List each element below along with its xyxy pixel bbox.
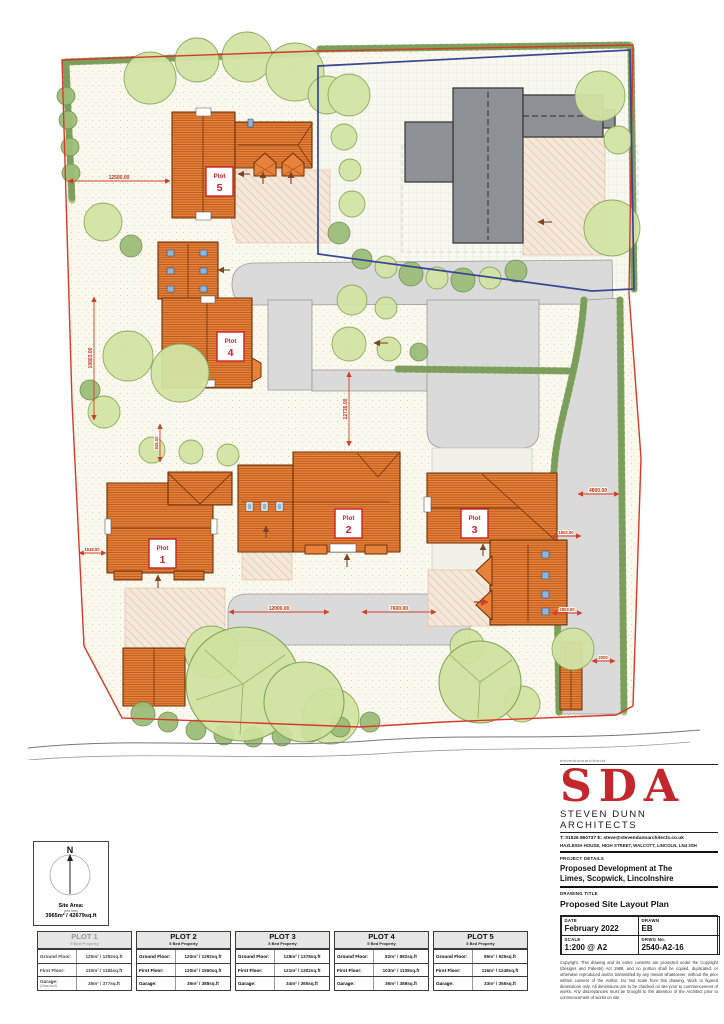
dimension-label: 4800.00	[589, 488, 607, 494]
plot4-title: PLOT 4	[335, 933, 428, 941]
table-row: Ground Floor: 120m² / 1292sq.ft	[38, 949, 131, 963]
plot4-subtitle: 5 Bed Property	[335, 941, 428, 946]
sda-logo: SDA	[560, 766, 718, 808]
table-row: Ground Floor: 86m² / 925sq.ft	[434, 949, 527, 963]
svg-text:Plot: Plot	[225, 338, 238, 345]
svg-text:5: 5	[217, 182, 223, 194]
plot-label-1: Plot 1	[149, 539, 176, 568]
plot3-title: PLOT 3	[236, 933, 329, 941]
plot2-title: PLOT 2	[137, 933, 230, 941]
table-row: First Floor: 103m² / 1108sq.ft	[335, 963, 428, 977]
table-row: First Floor: 110m² / 1184sq.ft	[38, 963, 131, 977]
table-row: First Floor: 116m² / 1248sq.ft	[434, 963, 527, 977]
table-row: Garage: (Detached) 35m² / 377sq.ft	[38, 976, 131, 990]
project-details-label: PROJECT DETAILS	[560, 856, 718, 861]
date-value: February 2022	[565, 924, 635, 933]
dimension-label: 12000.00	[269, 606, 290, 612]
project-details: Proposed Development at The Limes, Scopw…	[560, 864, 680, 883]
svg-text:Plot: Plot	[214, 173, 227, 180]
dimension-label: 845.00	[154, 436, 159, 449]
table-row: Ground Floor: 120m² / 1292sq.ft	[137, 949, 230, 963]
site-area-value: 3965m² / 42679sq.ft	[34, 913, 108, 919]
plot3-subtitle: 5 Bed Property	[236, 941, 329, 946]
copyright-note: Copyright. This drawing and its entire c…	[560, 960, 718, 1001]
drawn-value: EB	[642, 924, 716, 933]
dimension-label: 12500.00	[109, 175, 130, 181]
drawing-info-grid: DATE February 2022 DRAWN EB SCALE 1:200 …	[560, 915, 718, 955]
table-row: Ground Floor: 82m² / 882sq.ft	[335, 949, 428, 963]
plot5-title: PLOT 5	[434, 933, 527, 941]
address-line: HAZLEIGH HOUSE, HIGH STREET, WALCOTT, LI…	[560, 843, 718, 848]
table-row: First Floor: 120m² / 1550sq.ft	[137, 963, 230, 977]
table-row: Garage: 33m² / 355sq.ft	[434, 976, 527, 990]
garage-plot-4	[158, 242, 218, 299]
plot-label-2: Plot 2	[335, 509, 362, 538]
dimension-label: 2000	[598, 655, 608, 660]
plot-table-4: PLOT 4 5 Bed Property Ground Floor: 82m²…	[334, 931, 429, 991]
table-row: Ground Floor: 128m² / 1378sq.ft	[236, 949, 329, 963]
compass: N	[34, 842, 106, 900]
scale-label: SCALE	[565, 937, 635, 942]
svg-text:Plot: Plot	[469, 515, 482, 522]
north-letter: N	[67, 845, 74, 855]
date-cell: DATE February 2022	[561, 916, 639, 936]
svg-text:3: 3	[472, 524, 478, 536]
firm-name: STEVEN DUNN ARCHITECTS	[560, 809, 718, 831]
drwg-value: 2540-A2-16	[642, 943, 716, 952]
plot-tables: PLOT 1 5 Bed Property Ground Floor: 120m…	[37, 931, 528, 991]
dimension-label: 10803.00	[88, 347, 94, 368]
garage-plot-1	[123, 648, 185, 706]
scale-value: 1:200 @ A2	[565, 943, 635, 952]
svg-text:2: 2	[346, 524, 352, 536]
plot-table-1: PLOT 1 5 Bed Property Ground Floor: 120m…	[37, 931, 132, 991]
plot-label-3: Plot 3	[461, 509, 488, 538]
garage-detached-note: (Detached)	[40, 984, 76, 988]
dimension-label: 12735.00	[343, 398, 349, 419]
plot-table-3: PLOT 3 5 Bed Property Ground Floor: 128m…	[235, 931, 330, 991]
plot1-subtitle: 5 Bed Property	[38, 941, 131, 946]
drwg-label: DRWG No.	[642, 937, 716, 942]
drawn-label: DRAWN	[642, 918, 716, 923]
plot-label-4: Plot 4	[217, 332, 244, 361]
table-row: First Floor: 121m² / 1302sq.ft	[236, 963, 329, 977]
plot-table-5: PLOT 5 5 Bed Property Ground Floor: 86m²…	[433, 931, 528, 991]
svg-text:Plot: Plot	[343, 515, 356, 522]
plot-table-2: PLOT 2 5 Bed Property Ground Floor: 120m…	[136, 931, 231, 991]
svg-text:Plot: Plot	[157, 545, 170, 552]
dimension-label: 1518.00	[84, 547, 100, 552]
dimension-label: 1803.00	[558, 530, 574, 535]
drawn-cell: DRAWN EB	[638, 916, 720, 936]
table-row: Garage: 36m² / 388sq.ft	[335, 976, 428, 990]
site-area-box: Site Area: (red line) 3965m² / 42679sq.f…	[33, 901, 109, 926]
scale-cell: SCALE 1:200 @ A2	[561, 935, 639, 955]
dimension-label: 7600.00	[390, 606, 408, 612]
site-plan: 12500.00 10803.00 845.00 1518.00 12735.0…	[0, 0, 724, 760]
table-row: Garage: 34m² / 365sq.ft	[236, 976, 329, 990]
date-label: DATE	[565, 918, 635, 923]
drawing-title: Proposed Site Layout Plan	[560, 899, 718, 909]
svg-text:4: 4	[228, 347, 234, 359]
title-block: stevendunnarchitects SDA STEVEN DUNN ARC…	[560, 758, 718, 1001]
plot5-subtitle: 5 Bed Property	[434, 941, 527, 946]
plot-label-5: Plot 5	[206, 167, 233, 196]
plot1-title: PLOT 1	[38, 933, 131, 941]
house-plot-2	[238, 452, 400, 554]
drawing-sheet: 12500.00 10803.00 845.00 1518.00 12735.0…	[0, 0, 724, 1024]
plot2-subtitle: 5 Bed Property	[137, 941, 230, 946]
north-arrow-box: N	[33, 841, 109, 903]
drawing-title-label: DRAWING TITLE	[560, 891, 718, 896]
dimension-label: 2803.00	[559, 607, 575, 612]
drwg-cell: DRWG No. 2540-A2-16	[638, 935, 720, 955]
svg-text:1: 1	[160, 554, 166, 566]
contact-line: T: 01526 860737 E: steve@stevendunnarchi…	[560, 836, 718, 841]
table-row: Garage: 36m² / 388sq.ft	[137, 976, 230, 990]
